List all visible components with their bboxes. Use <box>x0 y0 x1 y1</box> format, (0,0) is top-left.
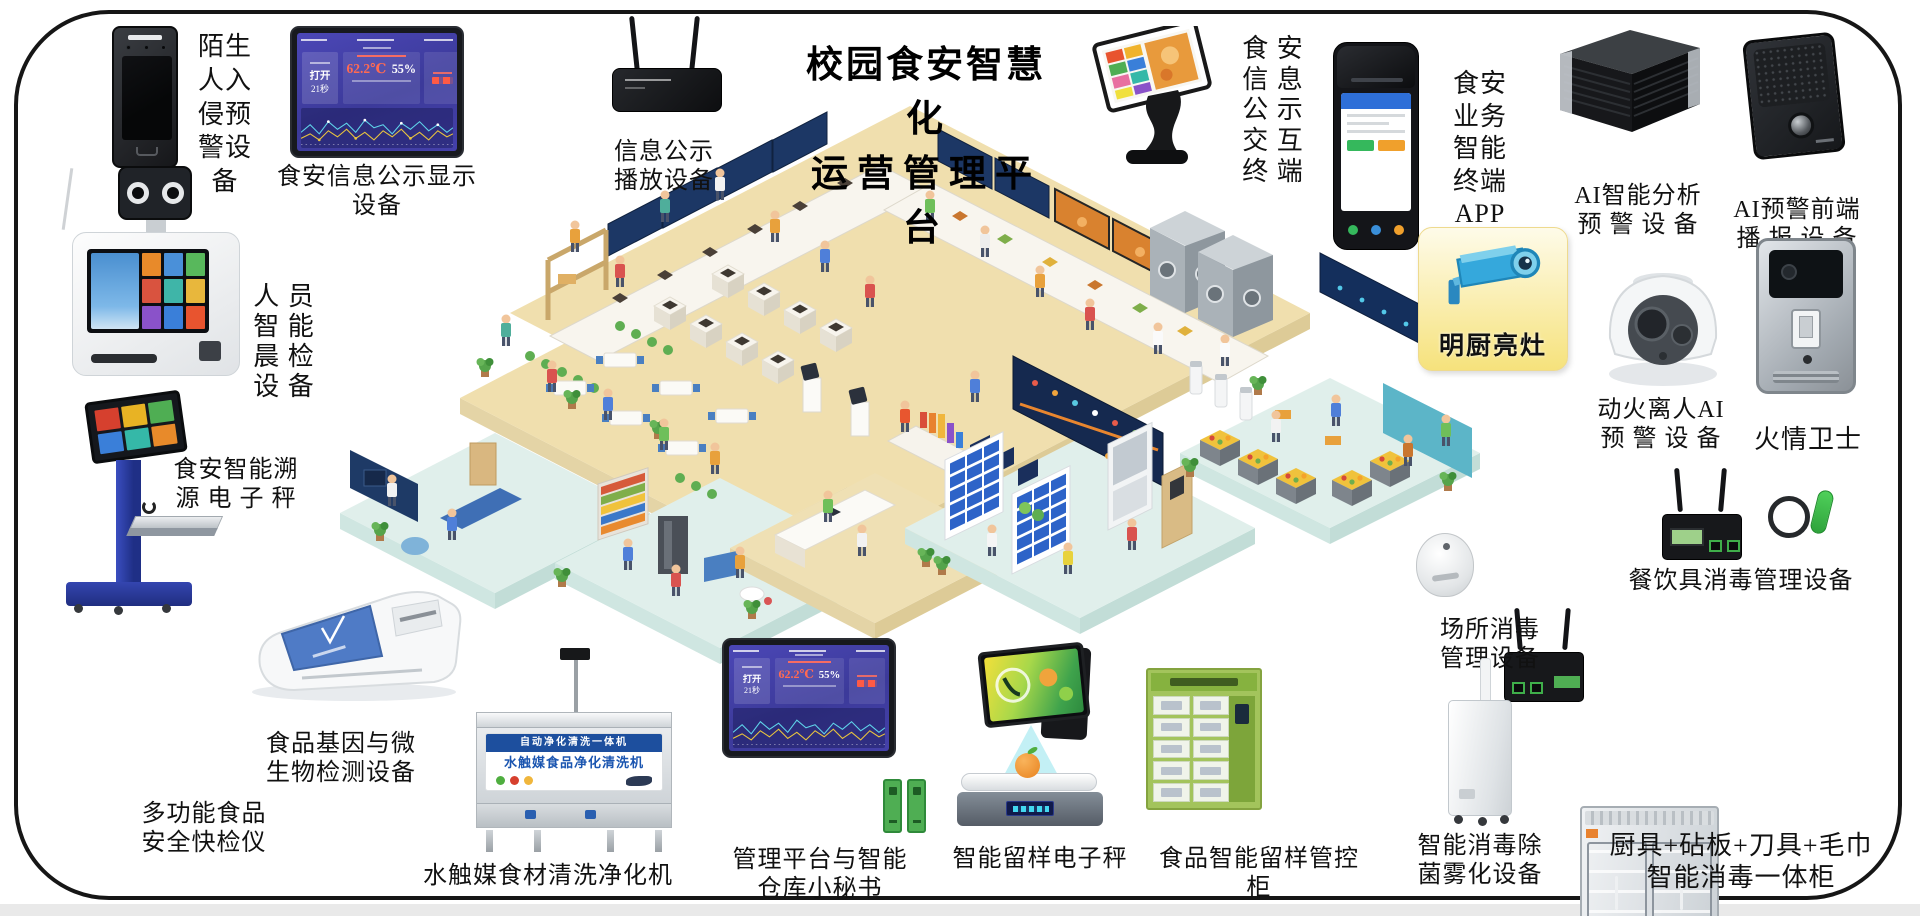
label-fogger: 智能消毒除 菌雾化设备 <box>1406 832 1554 891</box>
receipt-printer <box>1337 46 1415 88</box>
router-lcd <box>1670 528 1704 546</box>
antenna-icon <box>689 16 700 72</box>
washer-banner: 自动净化清洗一体机 水触媒食品净化清洗机 <box>485 733 663 791</box>
ai-broadcast-speaker-image <box>1748 36 1848 168</box>
weight-display <box>1006 801 1054 816</box>
antenna-icon <box>1718 468 1727 512</box>
broadcast-box-image <box>612 16 722 116</box>
antenna-icon <box>62 168 74 230</box>
ai-analysis-box-image <box>1552 24 1707 136</box>
fogger-machine-image <box>1444 658 1524 828</box>
dashboard-screen: 打开21秒 62.2℃55% <box>729 645 889 751</box>
terminal-block <box>1554 676 1580 688</box>
dashboard-screen: 打开21秒 62.2℃55% <box>297 33 457 151</box>
dashboard-status-card: 打开21秒 <box>734 658 770 704</box>
label-fire-guardian: 火情卫士 <box>1746 424 1870 456</box>
mingchu-badge-text: 明厨亮灶 <box>1419 326 1567 362</box>
page-title-line1: 校园食安智慧化 <box>792 34 1060 142</box>
label-morning-check: 人 员 智 能 晨 检 设 备 <box>248 282 320 402</box>
dashboard-status-card: 打开21秒 <box>302 52 338 104</box>
food-washer-image: 自动净化清洗一体机 水触媒食品净化清洗机 <box>476 648 672 852</box>
label-tableware-disinfect: 餐饮具消毒管理设备 <box>1612 567 1870 596</box>
tableware-disinfect-router-image <box>1662 468 1746 560</box>
label-info-display: 食安信息公示显示设备 <box>266 163 488 222</box>
label-broadcast-device: 信息公示 播放设备 <box>607 138 721 197</box>
diagram-canvas: 校园食安智慧化 运营管理平台 陌生 人入 侵预 警设 备 打开21秒 62.2℃… <box>0 0 1920 916</box>
label-sample-scale: 智能留样电子秤 <box>952 845 1128 874</box>
dashboard-temp-card: 62.2℃55% <box>775 658 845 704</box>
washer-camera <box>560 648 590 660</box>
page-title: 校园食安智慧化 运营管理平台 <box>792 34 1060 251</box>
antenna-icon <box>1562 608 1571 650</box>
label-gene-detect: 食品基因与微 生物检测设备 <box>262 730 420 789</box>
interactive-kiosk-image <box>1088 26 1216 174</box>
gene-analyzer-image <box>242 570 470 704</box>
speaker-grille <box>1753 43 1831 108</box>
face-recognition-screen <box>122 56 172 140</box>
label-rapid-test: 多功能食品 安全快检仪 <box>136 800 272 859</box>
thermal-dome-camera-image <box>1592 238 1734 390</box>
label-app-terminal: 食安 业务 智能 终端 APP <box>1450 68 1510 231</box>
mgmt-platform-monitor-image: 打开21秒 62.2℃55% <box>722 638 896 758</box>
cctv-camera-icon <box>1433 242 1553 322</box>
dashboard-temp-card: 62.2℃55% <box>343 52 420 104</box>
label-sample-cabinet: 食品智能留样管控柜 <box>1148 845 1370 904</box>
label-dome-camera: 动火离人AI 预 警 设 备 <box>1582 396 1740 455</box>
morning-check-screen <box>87 249 209 333</box>
sample-scale-image <box>955 645 1105 831</box>
info-display-monitor-image: 打开21秒 62.2℃55% <box>290 26 464 158</box>
pos-screen <box>1341 93 1411 211</box>
scale-ad-screen <box>977 642 1090 729</box>
green-sensor-boards-image <box>883 779 926 833</box>
handheld-terminal-image <box>1333 42 1419 250</box>
smoke-style-sensor-image <box>1416 533 1474 597</box>
label-washer: 水触媒食材清洗净化机 <box>422 862 674 891</box>
trace-scale-screen <box>84 390 188 465</box>
page-title-line2: 运营管理平台 <box>792 143 1060 251</box>
dashboard-trend-chart <box>301 108 453 148</box>
morning-check-device-image <box>60 162 256 402</box>
speaker-knob <box>1787 111 1816 140</box>
dual-camera-icon <box>118 166 192 220</box>
antenna-icon <box>629 16 640 72</box>
mingchu-liangzao-badge: 明厨亮灶 <box>1418 227 1568 371</box>
thermal-screen <box>1769 250 1843 298</box>
label-mgmt-platform: 管理平台与智能 仓库小秘书 <box>728 846 912 905</box>
stranger-intrusion-device-image <box>112 26 178 168</box>
label-trace-scale: 食安智能溯 源 电 子 秤 <box>162 456 310 515</box>
label-disinfect-cabinet: 厨具+砧板+刀具+毛巾 智能消毒一体柜 <box>1596 830 1886 893</box>
dashboard-alert-card <box>424 52 457 104</box>
handheld-sanitizer-image <box>1768 496 1832 558</box>
antenna-icon <box>1674 468 1683 512</box>
sample-cabinet-green-image <box>1146 668 1262 810</box>
dashboard-alert-card <box>849 658 885 704</box>
label-kiosk: 食 安 信 息 公 示 交 互 终 端 <box>1238 34 1308 187</box>
orange-fruit <box>1015 753 1040 778</box>
dashboard-trend-chart <box>733 708 885 748</box>
fire-guardian-image <box>1756 238 1856 394</box>
label-ai-analysis: AI智能分析 预 警 设 备 <box>1558 182 1718 241</box>
